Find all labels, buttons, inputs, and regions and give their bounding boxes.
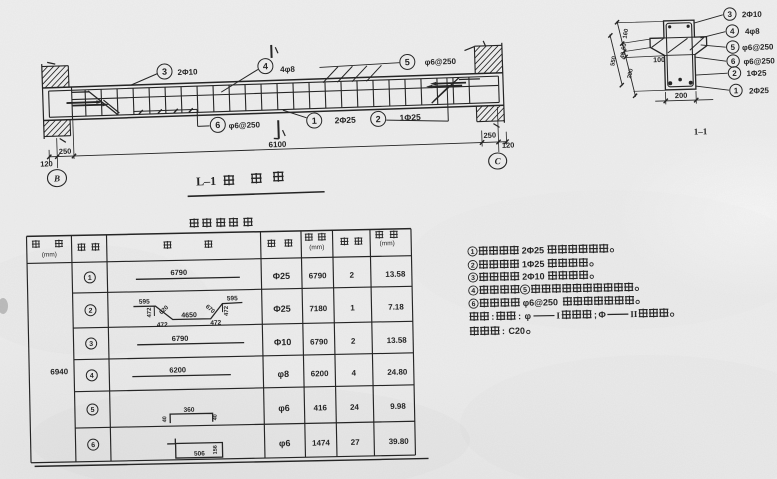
svg-text:φ6: φ6 <box>278 403 290 413</box>
svg-text:1474: 1474 <box>312 438 331 447</box>
svg-text:2: 2 <box>471 263 475 270</box>
svg-text:B: B <box>53 173 60 183</box>
svg-text:1: 1 <box>734 86 739 95</box>
svg-text:(mm): (mm) <box>380 240 395 247</box>
svg-text:1: 1 <box>350 303 355 312</box>
svg-text:200: 200 <box>675 91 688 100</box>
svg-text:4: 4 <box>471 288 475 295</box>
svg-text:6100: 6100 <box>268 140 287 150</box>
svg-text:1: 1 <box>88 275 92 282</box>
svg-text:Φ25: Φ25 <box>273 304 291 314</box>
svg-text:6790: 6790 <box>309 271 328 280</box>
svg-text:39.80: 39.80 <box>389 437 410 446</box>
svg-text:27: 27 <box>351 438 361 447</box>
svg-text::: : <box>518 311 521 321</box>
svg-text:6790: 6790 <box>310 337 329 346</box>
svg-text::: : <box>491 312 494 322</box>
svg-text:156: 156 <box>213 445 219 454</box>
svg-text:40: 40 <box>162 416 168 422</box>
svg-text:5: 5 <box>405 57 410 67</box>
svg-text:1Φ25: 1Φ25 <box>746 69 767 79</box>
svg-text:40: 40 <box>213 414 219 420</box>
svg-text:1Φ25: 1Φ25 <box>522 259 545 269</box>
svg-text:595: 595 <box>227 295 238 302</box>
svg-text:φ: φ <box>524 311 531 321</box>
svg-text:4: 4 <box>90 373 94 380</box>
svg-text:7180: 7180 <box>309 304 328 313</box>
svg-text:13.58: 13.58 <box>387 336 408 345</box>
svg-text:472: 472 <box>224 305 230 316</box>
svg-text:6790: 6790 <box>172 334 189 343</box>
svg-text:2Φ10: 2Φ10 <box>742 10 763 20</box>
svg-text:2: 2 <box>732 69 737 78</box>
svg-text:φ8: φ8 <box>277 369 289 379</box>
svg-text:120: 120 <box>502 140 515 149</box>
svg-text:120: 120 <box>40 159 53 168</box>
svg-text:1: 1 <box>471 249 475 256</box>
svg-text:(mm): (mm) <box>42 251 57 258</box>
svg-text:;: ; <box>594 310 597 320</box>
svg-text:472: 472 <box>147 307 153 318</box>
svg-text:2: 2 <box>351 337 356 346</box>
svg-text:6200: 6200 <box>311 369 330 378</box>
svg-text:3: 3 <box>727 10 732 19</box>
svg-text:1: 1 <box>312 116 317 126</box>
svg-text:3: 3 <box>162 67 167 77</box>
svg-text:4: 4 <box>730 27 735 36</box>
svg-text:1–1: 1–1 <box>694 126 708 136</box>
svg-text:6790: 6790 <box>170 268 187 277</box>
svg-text:φ6@250: φ6@250 <box>742 42 774 52</box>
svg-text:6: 6 <box>472 301 476 308</box>
svg-text:2: 2 <box>350 271 355 280</box>
svg-text:5: 5 <box>90 407 94 414</box>
svg-text:24.80: 24.80 <box>387 367 408 376</box>
svg-text:2Φ25: 2Φ25 <box>334 115 356 126</box>
svg-text:2Φ25: 2Φ25 <box>749 86 770 96</box>
svg-text:C20: C20 <box>508 326 525 336</box>
svg-text:472: 472 <box>210 320 221 327</box>
svg-text:2Φ25: 2Φ25 <box>522 245 545 255</box>
svg-text:6: 6 <box>91 442 95 449</box>
svg-text:4650: 4650 <box>181 312 197 319</box>
svg-text:595: 595 <box>139 299 150 306</box>
svg-text:4: 4 <box>263 61 268 71</box>
svg-text:6940: 6940 <box>50 367 69 376</box>
svg-text:II: II <box>630 309 638 319</box>
svg-text::: : <box>502 326 505 336</box>
svg-text:(mm): (mm) <box>309 244 324 251</box>
svg-text:2Φ10: 2Φ10 <box>177 67 198 77</box>
svg-text:250: 250 <box>483 131 496 140</box>
svg-text:Φ25: Φ25 <box>273 271 291 281</box>
svg-text:φ6@250: φ6@250 <box>743 56 775 66</box>
svg-text:24: 24 <box>350 403 360 412</box>
svg-text:100: 100 <box>653 57 665 64</box>
svg-text:5: 5 <box>730 43 735 52</box>
svg-text:250: 250 <box>59 147 72 156</box>
svg-text:φ6@250: φ6@250 <box>523 297 558 308</box>
svg-text:2: 2 <box>88 308 92 315</box>
svg-text:9.98: 9.98 <box>390 402 406 411</box>
svg-text:6200: 6200 <box>169 365 186 374</box>
svg-text:4φ8: 4φ8 <box>745 27 760 36</box>
svg-text:φ6: φ6 <box>279 438 291 448</box>
svg-text:3: 3 <box>89 341 93 348</box>
svg-text:4: 4 <box>351 369 356 378</box>
svg-text:φ6@250: φ6@250 <box>425 57 457 67</box>
svg-text:472: 472 <box>157 322 168 329</box>
svg-text:3: 3 <box>471 275 475 282</box>
svg-text:L–1: L–1 <box>196 174 216 189</box>
svg-text:φ6@250: φ6@250 <box>229 120 261 130</box>
svg-text:1Φ25: 1Φ25 <box>399 112 421 123</box>
svg-text:4φ8: 4φ8 <box>280 65 295 74</box>
svg-text:416: 416 <box>314 403 328 412</box>
svg-text:6: 6 <box>731 57 736 66</box>
svg-text:7.18: 7.18 <box>388 302 404 311</box>
svg-text:Φ: Φ <box>598 310 606 320</box>
svg-text:13.58: 13.58 <box>385 270 406 279</box>
svg-text:2Φ10: 2Φ10 <box>522 271 545 281</box>
svg-text:6: 6 <box>215 120 220 130</box>
svg-text:5: 5 <box>523 287 527 294</box>
svg-text:506: 506 <box>194 450 205 457</box>
svg-text:360: 360 <box>184 407 195 414</box>
svg-text:2: 2 <box>376 114 381 124</box>
svg-text:Φ10: Φ10 <box>274 337 292 347</box>
